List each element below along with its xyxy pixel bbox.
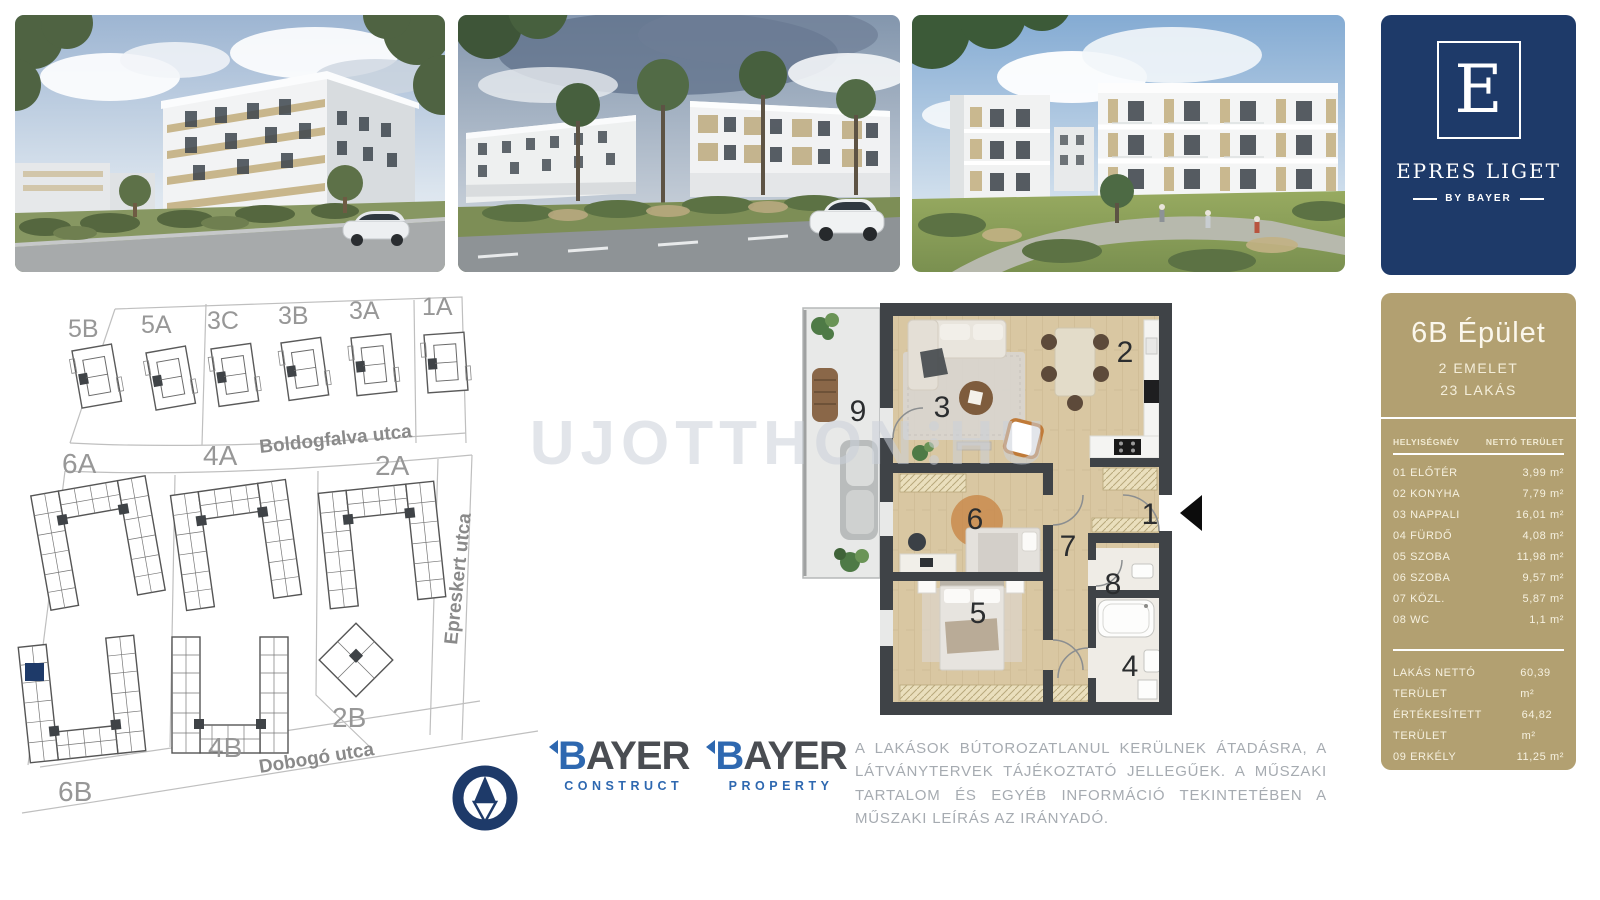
room-number-4: 4 <box>1122 650 1139 683</box>
wc-sink-icon <box>1132 564 1153 578</box>
render-photo-street-view <box>458 15 900 272</box>
room-number-9: 9 <box>850 395 867 428</box>
logo-letter-b: B <box>558 734 586 778</box>
col-net-area: NETTÓ TERÜLET <box>1486 437 1564 447</box>
site-buildings-bottom-row <box>18 623 393 763</box>
tagline-rule-right <box>1520 198 1544 200</box>
room-label: 01 ELŐTÉR <box>1393 463 1458 484</box>
room-label: 07 KÖZL. <box>1393 589 1445 610</box>
partner-logos: BAYER CONSTRUCT BAYER PROPERTY <box>558 736 847 793</box>
table-row: 01 ELŐTÉR3,99 m² <box>1381 463 1576 484</box>
logo-division: PROPERTY <box>729 779 834 793</box>
room-label: 06 SZOBA <box>1393 568 1450 589</box>
room-area: 7,79 m² <box>1523 484 1565 505</box>
total-label: LAKÁS NETTÓ TERÜLET <box>1393 663 1520 705</box>
label-2b: 2B <box>332 702 366 733</box>
table-row: 04 FÜRDŐ4,08 m² <box>1381 526 1576 547</box>
street-epreskert: Epreskert utca <box>441 512 476 646</box>
room-label: 08 WC <box>1393 610 1430 631</box>
label-5a: 5A <box>141 311 172 339</box>
fridge-icon <box>1144 380 1159 403</box>
brand-logo-letter: E <box>1454 57 1502 123</box>
room-area: 9,57 m² <box>1523 568 1565 589</box>
unit-subtitle: 2 EMELET 23 LAKÁS <box>1381 358 1576 401</box>
logo-letter-b: B <box>715 734 743 778</box>
balcony <box>803 308 880 578</box>
table-row: 03 NAPPALI16,01 m² <box>1381 505 1576 526</box>
bayer-construct-logo: BAYER CONSTRUCT <box>558 736 689 793</box>
total-row: LAKÁS NETTÓ TERÜLET60,39 m² <box>1381 663 1576 705</box>
label-3b: 3B <box>278 302 309 330</box>
room-label: 05 SZOBA <box>1393 547 1450 568</box>
brand-tagline: BY BAYER <box>1413 193 1544 204</box>
table-header-rule <box>1393 453 1564 455</box>
room-number-7: 7 <box>1060 530 1077 563</box>
label-6a: 6A <box>62 448 97 479</box>
table-row: 08 WC1,1 m² <box>1381 610 1576 631</box>
outdoor-sofa-icon <box>840 440 878 540</box>
logo-division: CONSTRUCT <box>564 779 683 793</box>
street-labels: Boldogfalva utca Epreskert utca Dobogó u… <box>257 421 475 778</box>
armchair-icon <box>1003 419 1043 459</box>
outdoor-chair-icon <box>812 368 838 422</box>
total-row: ÉRTÉKESÍTETT TERÜLET64,82 m² <box>1381 705 1576 747</box>
room-area: 5,87 m² <box>1523 589 1565 610</box>
total-area: 11,25 m² <box>1517 747 1564 768</box>
label-2a: 2A <box>375 450 410 481</box>
label-5b: 5B <box>68 315 99 343</box>
total-label: 09 ERKÉLY <box>1393 747 1456 768</box>
render-photo-corner-building <box>15 15 445 272</box>
col-room-name: HELYISÉGNÉV <box>1393 437 1459 447</box>
tv-console-icon <box>957 442 991 450</box>
brand-name: EPRES LIGET <box>1396 159 1561 183</box>
flyer-page: E EPRES LIGET BY BAYER <box>0 0 1600 900</box>
label-1a: 1A <box>422 295 453 321</box>
table-row: 07 KÖZL.5,87 m² <box>1381 589 1576 610</box>
logo-rest: AYER <box>586 734 689 778</box>
room-label: 02 KONYHA <box>1393 484 1460 505</box>
room-number-6: 6 <box>967 503 984 536</box>
room-number-2: 2 <box>1117 336 1134 369</box>
room-number-8: 8 <box>1105 568 1122 601</box>
total-row: 09 ERKÉLY11,25 m² <box>1381 747 1576 768</box>
label-6b: 6B <box>58 776 92 807</box>
room-number-1: 1 <box>1142 498 1159 531</box>
label-3c: 3C <box>207 307 239 335</box>
total-area: 60,39 m² <box>1520 663 1564 705</box>
floor-plan: 1 2 3 4 5 6 7 8 9 <box>770 290 1205 722</box>
tagline-text: BY BAYER <box>1445 193 1512 204</box>
table-row: 06 SZOBA9,57 m² <box>1381 568 1576 589</box>
room-area: 3,99 m² <box>1523 463 1565 484</box>
logo-pennant-icon <box>549 740 558 754</box>
site-buildings-middle-row <box>31 476 446 611</box>
total-area: 64,82 m² <box>1522 705 1564 747</box>
room-area: 1,1 m² <box>1529 610 1564 631</box>
logo-pennant-icon <box>706 740 715 754</box>
label-3a: 3A <box>349 297 380 325</box>
cooktop-icon <box>1114 439 1141 455</box>
room-area: 16,01 m² <box>1516 505 1564 526</box>
bayer-property-logo: BAYER PROPERTY <box>715 736 846 793</box>
label-4a: 4A <box>203 440 238 471</box>
table-row: 02 KONYHA7,79 m² <box>1381 484 1576 505</box>
room-number-3: 3 <box>934 391 951 424</box>
totals-divider <box>1393 649 1564 651</box>
unit-apartments: 23 LAKÁS <box>1381 380 1576 402</box>
sink-icon <box>1144 650 1160 672</box>
room-label: 03 NAPPALI <box>1393 505 1460 526</box>
total-label: ÉRTÉKESÍTETT TERÜLET <box>1393 705 1522 747</box>
site-buildings-top-row <box>68 332 472 411</box>
logo-rest: AYER <box>743 734 846 778</box>
site-plan-map: 5B 5A 3C 3B 3A 1A 6A 4A 2A 6B 4B 2B Bold… <box>10 295 540 845</box>
compass-icon <box>458 771 512 825</box>
highlighted-unit-6b <box>25 663 44 681</box>
unit-info-panel: 6B Épület 2 EMELET 23 LAKÁS HELYISÉGNÉV … <box>1381 293 1576 770</box>
desk-chair-icon <box>908 533 926 551</box>
label-4b: 4B <box>208 732 242 763</box>
room-area: 4,08 m² <box>1523 526 1565 547</box>
disclaimer-text: A LAKÁSOK BÚTOROZATLANUL KERÜLNEK ÁTADÁS… <box>855 737 1327 830</box>
table-row: 05 SZOBA11,98 m² <box>1381 547 1576 568</box>
unit-title: 6B Épület <box>1381 317 1576 350</box>
table-header: HELYISÉGNÉV NETTÓ TERÜLET <box>1381 437 1576 447</box>
brand-logo-monogram: E <box>1437 41 1521 139</box>
tagline-rule-left <box>1413 198 1437 200</box>
brand-panel: E EPRES LIGET BY BAYER <box>1381 15 1576 275</box>
render-photo-courtyard <box>912 15 1345 272</box>
room-label: 04 FÜRDŐ <box>1393 526 1452 547</box>
unit-floors: 2 EMELET <box>1381 358 1576 380</box>
entrance-arrow-icon <box>1180 495 1202 531</box>
panel-divider <box>1381 417 1576 419</box>
room-area: 11,98 m² <box>1517 547 1564 568</box>
washer-icon <box>1138 680 1157 699</box>
room-number-5: 5 <box>970 597 987 630</box>
